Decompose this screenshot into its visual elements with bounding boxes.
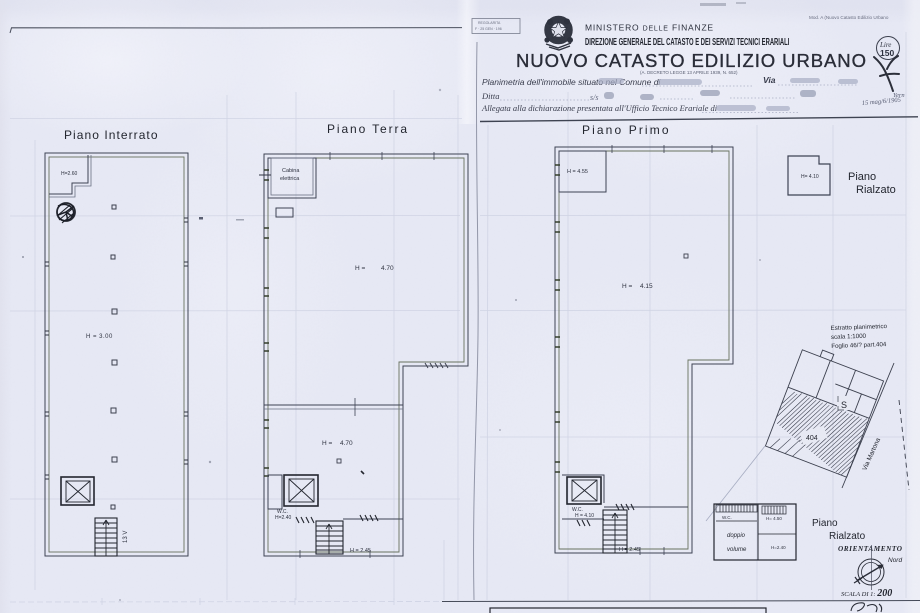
svg-text:ORIENTAMENTO: ORIENTAMENTO: [838, 545, 903, 553]
svg-text:Nord: Nord: [888, 557, 902, 564]
svg-text:Piano Interrato: Piano Interrato: [64, 128, 158, 142]
svg-text:H = 2.45: H = 2.45: [619, 547, 640, 553]
svg-text:Piano Primo: Piano Primo: [582, 123, 670, 137]
svg-text:doppio: doppio: [727, 533, 746, 539]
svg-text:H=2.40: H=2.40: [275, 515, 291, 521]
svg-text:404: 404: [806, 435, 818, 442]
svg-text:H= 4.50: H= 4.50: [766, 516, 782, 521]
svg-text:NUOVO CATASTO EDILIZIO URBANO: NUOVO CATASTO EDILIZIO URBANO: [516, 50, 870, 71]
svg-text:Piano: Piano: [812, 518, 838, 529]
svg-text:Rialzato: Rialzato: [829, 531, 866, 542]
svg-text:Planimetria dell'immobile situ: Planimetria dell'immobile situato nel Co…: [482, 77, 661, 87]
svg-text:H = 2.45: H = 2.45: [350, 548, 371, 554]
svg-text:Allegata alla dichiarazione pr: Allegata alla dichiarazione presentata a…: [481, 103, 718, 113]
svg-text:volume: volume: [727, 547, 747, 553]
svg-text:H = 4.55: H = 4.55: [567, 169, 588, 175]
svg-text:elettrica: elettrica: [280, 176, 300, 182]
svg-text:H=2.60: H=2.60: [61, 171, 77, 177]
svg-text:Via: Via: [763, 75, 776, 85]
svg-text:(A. DECRETO LEGGE 13 APRILE 19: (A. DECRETO LEGGE 13 APRILE 1939, N. 652…: [640, 70, 738, 75]
svg-text:13 V: 13 V: [123, 531, 129, 543]
svg-text:S: S: [841, 400, 847, 410]
svg-text:Cabina: Cabina: [282, 168, 300, 174]
svg-text:Rialzato: Rialzato: [856, 184, 896, 196]
svg-text:s/s: s/s: [590, 93, 598, 102]
svg-text:150: 150: [880, 48, 894, 58]
svg-text:H = 3.00: H = 3.00: [86, 334, 113, 340]
svg-text:F · 25 GEN · 196: F · 25 GEN · 196: [475, 27, 502, 31]
svg-text:Piano Terra: Piano Terra: [327, 122, 408, 136]
svg-text:H = 4.10: H = 4.10: [575, 513, 594, 519]
svg-text:DIREZIONE GENERALE DEL CATASTO: DIREZIONE GENERALE DEL CATASTO E DEI SER…: [585, 35, 789, 47]
svg-text:H= 4.10: H= 4.10: [801, 174, 819, 180]
svg-text:Piano: Piano: [848, 171, 876, 183]
svg-text:Mod. A (Nuovo Catasto Edilizio: Mod. A (Nuovo Catasto Edilizio Urbano: [809, 15, 889, 20]
svg-text:Ditta: Ditta: [481, 91, 499, 101]
svg-text:H=2.40: H=2.40: [771, 545, 786, 550]
svg-text:REGOLARITA: REGOLARITA: [478, 21, 501, 25]
svg-text:scala 1:1000: scala 1:1000: [831, 333, 867, 341]
svg-text:W.C.: W.C.: [722, 515, 732, 520]
